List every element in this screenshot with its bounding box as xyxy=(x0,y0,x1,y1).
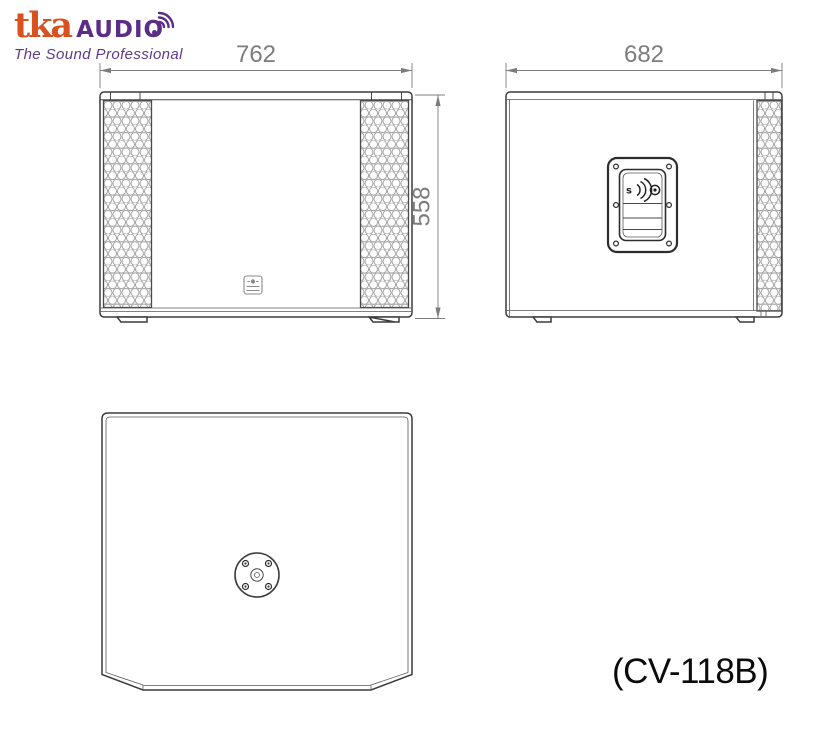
model-label: (CV-118B) xyxy=(612,652,768,692)
side-foot-left xyxy=(533,317,551,322)
front-foot-left xyxy=(117,317,147,322)
screw-icon xyxy=(614,203,619,208)
pole-mount xyxy=(235,553,279,597)
brand-tagline: The Sound Professional xyxy=(14,46,183,63)
dimension-front-height: 558 xyxy=(409,95,446,319)
screw-icon xyxy=(667,164,672,169)
side-grille-strip xyxy=(757,101,782,312)
brand-wordmark-audio: AUDIO xyxy=(76,19,164,42)
bottom-view xyxy=(102,413,412,690)
side-handle: s xyxy=(608,158,677,252)
pole-mount-plate xyxy=(235,553,279,597)
side-foot-right xyxy=(736,317,754,322)
screw-icon xyxy=(614,241,619,246)
side-view: s xyxy=(506,92,782,322)
screw-icon xyxy=(667,203,672,208)
screw-icon xyxy=(614,164,619,169)
front-view xyxy=(100,92,412,322)
brand-wordmark: tka AUDIO xyxy=(14,8,183,43)
sound-waves-icon xyxy=(155,9,177,31)
brand-wordmark-tka: tka xyxy=(14,8,71,43)
brand-logo: tka AUDIO The Sound Professional xyxy=(14,8,183,63)
front-grille-left xyxy=(104,101,152,308)
screw-icon xyxy=(667,241,672,246)
svg-text:s: s xyxy=(626,186,632,197)
dimension-front-height-value: 558 xyxy=(409,186,436,226)
dimension-side-depth-value: 682 xyxy=(624,41,664,68)
bottom-panel-outline xyxy=(102,413,412,690)
dimension-front-width-value: 762 xyxy=(236,41,276,68)
front-brand-badge xyxy=(244,276,262,294)
dimension-side-depth: 682 xyxy=(506,41,782,88)
technical-drawing: 762 558 s xyxy=(0,0,826,742)
front-foot-right xyxy=(369,317,399,322)
front-grille-right xyxy=(361,101,409,308)
